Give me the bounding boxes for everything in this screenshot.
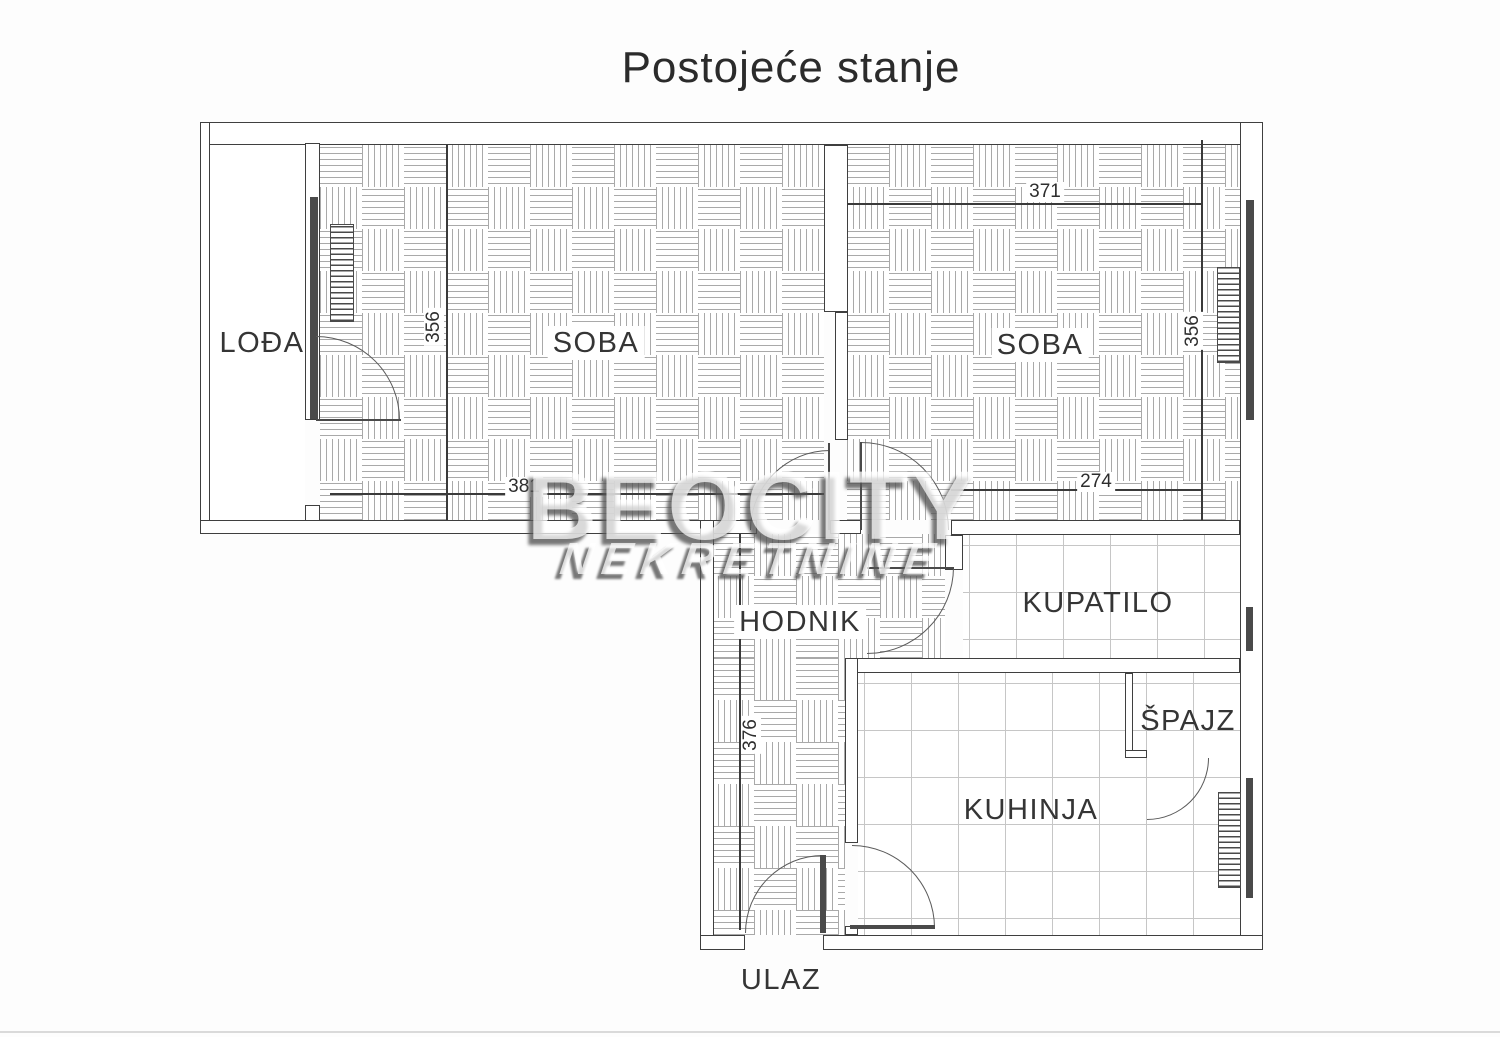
floor-plan-page: Postojeće stanje: [0, 0, 1500, 1037]
radiator-soba-left: [330, 224, 354, 322]
door-leaf-ulaz: [820, 855, 826, 933]
watermark-subtitle: NEKRETNINE: [557, 533, 947, 585]
dimension-label-soba-right-depth: 356: [1183, 312, 1203, 350]
dimension-label-soba-right-bottom: 274: [1077, 472, 1115, 492]
room-label-soba-left: SOBA: [548, 326, 645, 360]
wall-kuhinja-left: [845, 658, 858, 843]
wall-bottom-outer-left-of-entrance: [700, 935, 745, 950]
door-leaf-kuhinja: [850, 925, 935, 929]
page-title: Postojeće stanje: [622, 43, 961, 93]
dimension-label-soba-left-depth: 356: [424, 308, 444, 346]
wall-spajz-bottom-stub: [1125, 750, 1147, 758]
page-bottom-edge: [0, 1031, 1500, 1033]
radiator-soba-right: [1217, 267, 1240, 363]
window-kupatilo: [1246, 607, 1253, 651]
wall-left-outer-loda: [200, 122, 210, 533]
dimension-line-soba-right-top: [847, 203, 1203, 205]
dimension-line-soba-left-depth: [446, 145, 448, 520]
dimension-label-soba-right-top: 371: [1026, 182, 1064, 202]
window-kuhinja: [1246, 778, 1253, 898]
wall-middle-partition-upper: [824, 145, 848, 312]
wall-bottom-outer-right-of-entrance: [823, 935, 1263, 950]
wall-soba-right-bottom: [951, 520, 1240, 535]
door-leaf-loda: [316, 419, 401, 421]
wall-kupatilo-kuhinja: [845, 658, 1240, 673]
wall-middle-partition-lower: [835, 312, 848, 440]
room-label-kuhinja: KUHINJA: [959, 793, 1104, 827]
room-label-loda: LOĐA: [215, 326, 310, 360]
room-label-spajz: ŠPAJZ: [1135, 704, 1241, 738]
wall-top-outer: [200, 122, 1263, 145]
wall-spajz-left: [1125, 673, 1133, 757]
wall-loda-partition-stub: [305, 505, 320, 521]
radiator-kuhinja: [1218, 792, 1241, 888]
room-label-hodnik: HODNIK: [734, 605, 866, 639]
room-label-soba-right: SOBA: [992, 328, 1089, 362]
room-label-kupatilo: KUPATILO: [1017, 586, 1178, 620]
dimension-label-hodnik-length: 376: [741, 716, 761, 754]
entrance-label: ULAZ: [736, 963, 826, 997]
window-soba-right: [1246, 200, 1254, 420]
